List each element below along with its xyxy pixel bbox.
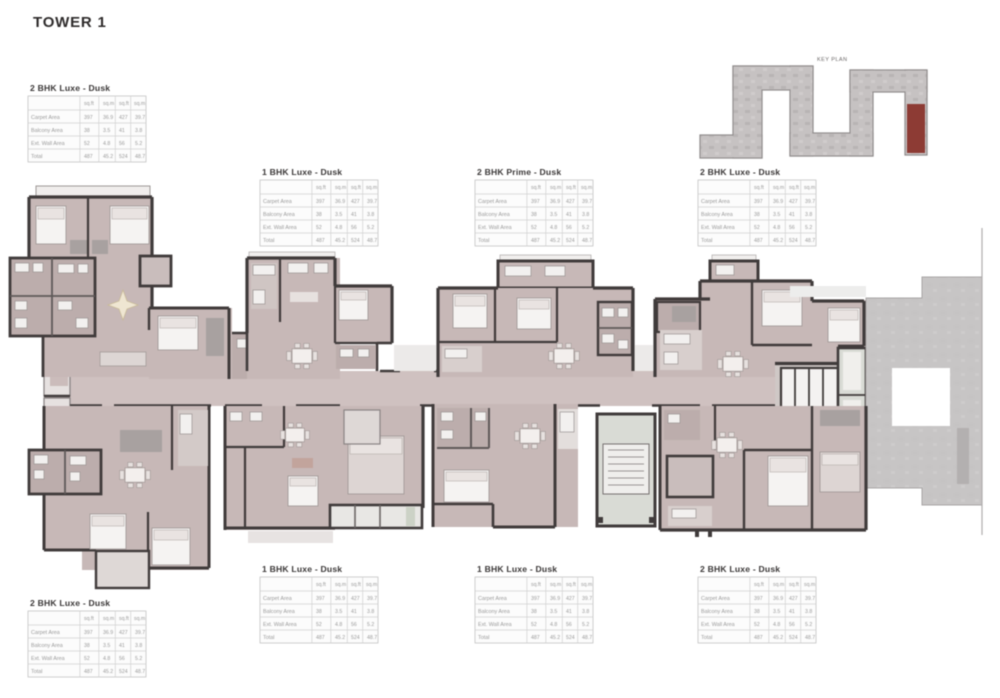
svg-text:41: 41 bbox=[119, 643, 125, 649]
svg-text:Carpet Area: Carpet Area bbox=[31, 630, 60, 636]
svg-text:427: 427 bbox=[119, 115, 128, 121]
svg-text:sq.m: sq.m bbox=[103, 101, 114, 107]
svg-text:38: 38 bbox=[531, 212, 537, 218]
svg-text:sq.m: sq.m bbox=[581, 185, 592, 191]
svg-text:Balcony Area: Balcony Area bbox=[701, 212, 733, 218]
svg-text:48.7: 48.7 bbox=[805, 238, 815, 244]
svg-text:Total: Total bbox=[263, 635, 274, 641]
svg-text:5.2: 5.2 bbox=[805, 622, 812, 628]
svg-text:52: 52 bbox=[316, 622, 322, 628]
svg-text:397: 397 bbox=[531, 596, 540, 602]
svg-text:sq.m: sq.m bbox=[550, 582, 561, 588]
svg-text:45.2: 45.2 bbox=[335, 238, 345, 244]
svg-text:45.2: 45.2 bbox=[550, 238, 560, 244]
svg-text:5.2: 5.2 bbox=[135, 656, 142, 662]
svg-text:Balcony Area: Balcony Area bbox=[478, 609, 510, 615]
svg-text:3.8: 3.8 bbox=[135, 643, 142, 649]
svg-text:2 BHK Luxe - Dusk: 2 BHK Luxe - Dusk bbox=[30, 83, 110, 93]
svg-text:48.7: 48.7 bbox=[135, 154, 145, 160]
svg-text:56: 56 bbox=[351, 225, 357, 231]
svg-text:Carpet Area: Carpet Area bbox=[263, 199, 292, 205]
svg-text:sq.ft: sq.ft bbox=[566, 582, 576, 588]
svg-text:sq.m: sq.m bbox=[550, 185, 561, 191]
svg-text:sq.m: sq.m bbox=[804, 582, 815, 588]
svg-text:41: 41 bbox=[789, 609, 795, 615]
svg-text:48.7: 48.7 bbox=[135, 669, 145, 675]
svg-text:45.2: 45.2 bbox=[103, 669, 113, 675]
svg-text:487: 487 bbox=[316, 635, 325, 641]
svg-text:36.9: 36.9 bbox=[103, 630, 113, 636]
svg-text:TOWER 1: TOWER 1 bbox=[33, 14, 107, 31]
svg-text:2 BHK Prime - Dusk: 2 BHK Prime - Dusk bbox=[477, 167, 561, 177]
svg-text:427: 427 bbox=[566, 596, 575, 602]
svg-text:5.2: 5.2 bbox=[135, 141, 142, 147]
svg-text:Ext. Wall Area: Ext. Wall Area bbox=[701, 225, 735, 231]
svg-text:Balcony Area: Balcony Area bbox=[263, 212, 295, 218]
svg-text:sq.ft: sq.ft bbox=[119, 101, 129, 107]
svg-text:Balcony Area: Balcony Area bbox=[31, 128, 63, 134]
svg-text:487: 487 bbox=[754, 635, 763, 641]
svg-text:4.8: 4.8 bbox=[335, 225, 342, 231]
svg-text:397: 397 bbox=[531, 199, 540, 205]
svg-text:2 BHK Luxe - Dusk: 2 BHK Luxe - Dusk bbox=[30, 598, 110, 608]
svg-text:524: 524 bbox=[566, 635, 575, 641]
svg-text:48.7: 48.7 bbox=[805, 635, 815, 641]
svg-text:38: 38 bbox=[316, 609, 322, 615]
svg-text:sq.ft: sq.ft bbox=[316, 185, 326, 191]
svg-text:3.5: 3.5 bbox=[550, 609, 557, 615]
svg-text:4.8: 4.8 bbox=[773, 622, 780, 628]
svg-text:524: 524 bbox=[351, 238, 360, 244]
svg-text:56: 56 bbox=[351, 622, 357, 628]
svg-text:48.7: 48.7 bbox=[582, 238, 592, 244]
svg-text:427: 427 bbox=[566, 199, 575, 205]
svg-text:487: 487 bbox=[84, 669, 93, 675]
svg-text:427: 427 bbox=[789, 596, 798, 602]
svg-text:38: 38 bbox=[84, 643, 90, 649]
svg-text:397: 397 bbox=[84, 630, 93, 636]
svg-text:41: 41 bbox=[351, 609, 357, 615]
svg-text:56: 56 bbox=[566, 225, 572, 231]
svg-text:Balcony Area: Balcony Area bbox=[478, 212, 510, 218]
svg-text:Ext. Wall Area: Ext. Wall Area bbox=[263, 622, 297, 628]
svg-text:Ext. Wall Area: Ext. Wall Area bbox=[31, 141, 65, 147]
svg-text:sq.ft: sq.ft bbox=[316, 582, 326, 588]
svg-text:427: 427 bbox=[351, 596, 360, 602]
svg-text:3.5: 3.5 bbox=[103, 128, 110, 134]
svg-text:45.2: 45.2 bbox=[550, 635, 560, 641]
svg-text:3.5: 3.5 bbox=[773, 609, 780, 615]
svg-text:36.9: 36.9 bbox=[773, 199, 783, 205]
svg-text:52: 52 bbox=[531, 622, 537, 628]
svg-text:524: 524 bbox=[789, 238, 798, 244]
svg-text:524: 524 bbox=[566, 238, 575, 244]
svg-text:39.7: 39.7 bbox=[135, 630, 145, 636]
svg-text:524: 524 bbox=[119, 154, 128, 160]
svg-text:3.5: 3.5 bbox=[335, 212, 342, 218]
svg-text:41: 41 bbox=[566, 609, 572, 615]
svg-text:39.7: 39.7 bbox=[135, 115, 145, 121]
svg-text:sq.ft: sq.ft bbox=[754, 582, 764, 588]
svg-text:2 BHK Luxe - Dusk: 2 BHK Luxe - Dusk bbox=[700, 564, 780, 574]
svg-text:52: 52 bbox=[531, 225, 537, 231]
svg-text:45.2: 45.2 bbox=[773, 238, 783, 244]
svg-text:487: 487 bbox=[531, 635, 540, 641]
svg-text:sq.ft: sq.ft bbox=[531, 582, 541, 588]
svg-text:524: 524 bbox=[119, 669, 128, 675]
svg-text:36.9: 36.9 bbox=[103, 115, 113, 121]
svg-text:1 BHK Luxe - Dusk: 1 BHK Luxe - Dusk bbox=[477, 564, 557, 574]
svg-text:Balcony Area: Balcony Area bbox=[31, 643, 63, 649]
svg-text:sq.m: sq.m bbox=[366, 582, 377, 588]
svg-text:sq.m: sq.m bbox=[804, 185, 815, 191]
svg-text:sq.ft: sq.ft bbox=[754, 185, 764, 191]
svg-text:3.8: 3.8 bbox=[582, 609, 589, 615]
svg-text:sq.m: sq.m bbox=[134, 101, 145, 107]
svg-text:39.7: 39.7 bbox=[367, 596, 377, 602]
svg-text:5.2: 5.2 bbox=[582, 225, 589, 231]
svg-text:Total: Total bbox=[701, 635, 712, 641]
svg-text:sq.ft: sq.ft bbox=[566, 185, 576, 191]
svg-text:38: 38 bbox=[84, 128, 90, 134]
svg-text:427: 427 bbox=[789, 199, 798, 205]
svg-text:38: 38 bbox=[316, 212, 322, 218]
svg-text:41: 41 bbox=[789, 212, 795, 218]
svg-text:Ext. Wall Area: Ext. Wall Area bbox=[478, 225, 512, 231]
svg-text:52: 52 bbox=[754, 225, 760, 231]
svg-text:Total: Total bbox=[701, 238, 712, 244]
svg-text:sq.m: sq.m bbox=[103, 616, 114, 622]
svg-text:56: 56 bbox=[119, 141, 125, 147]
svg-text:Carpet Area: Carpet Area bbox=[701, 199, 730, 205]
svg-text:5.2: 5.2 bbox=[367, 225, 374, 231]
svg-text:sq.ft: sq.ft bbox=[531, 185, 541, 191]
svg-text:3.5: 3.5 bbox=[773, 212, 780, 218]
svg-text:Ext. Wall Area: Ext. Wall Area bbox=[701, 622, 735, 628]
svg-text:sq.m: sq.m bbox=[773, 185, 784, 191]
svg-text:397: 397 bbox=[316, 199, 325, 205]
svg-text:3.8: 3.8 bbox=[367, 212, 374, 218]
svg-text:5.2: 5.2 bbox=[367, 622, 374, 628]
svg-text:427: 427 bbox=[351, 199, 360, 205]
svg-text:39.7: 39.7 bbox=[367, 199, 377, 205]
svg-text:56: 56 bbox=[789, 622, 795, 628]
svg-text:524: 524 bbox=[351, 635, 360, 641]
svg-text:Ext. Wall Area: Ext. Wall Area bbox=[478, 622, 512, 628]
svg-text:sq.ft: sq.ft bbox=[351, 185, 361, 191]
svg-text:Carpet Area: Carpet Area bbox=[31, 115, 60, 121]
svg-text:39.7: 39.7 bbox=[805, 199, 815, 205]
svg-text:Carpet Area: Carpet Area bbox=[701, 596, 730, 602]
svg-text:397: 397 bbox=[316, 596, 325, 602]
svg-text:sq.ft: sq.ft bbox=[84, 616, 94, 622]
svg-text:Carpet Area: Carpet Area bbox=[263, 596, 292, 602]
svg-text:52: 52 bbox=[84, 141, 90, 147]
svg-text:45.2: 45.2 bbox=[103, 154, 113, 160]
svg-text:KEY PLAN: KEY PLAN bbox=[817, 57, 847, 63]
svg-text:427: 427 bbox=[119, 630, 128, 636]
svg-text:Ext. Wall Area: Ext. Wall Area bbox=[263, 225, 297, 231]
svg-text:3.8: 3.8 bbox=[805, 609, 812, 615]
svg-text:36.9: 36.9 bbox=[550, 596, 560, 602]
svg-text:48.7: 48.7 bbox=[367, 635, 377, 641]
svg-text:5.2: 5.2 bbox=[805, 225, 812, 231]
svg-text:36.9: 36.9 bbox=[335, 596, 345, 602]
svg-text:sq.m: sq.m bbox=[134, 616, 145, 622]
svg-text:36.9: 36.9 bbox=[773, 596, 783, 602]
svg-text:sq.ft: sq.ft bbox=[789, 185, 799, 191]
svg-text:Ext. Wall Area: Ext. Wall Area bbox=[31, 656, 65, 662]
svg-text:41: 41 bbox=[351, 212, 357, 218]
svg-text:Balcony Area: Balcony Area bbox=[701, 609, 733, 615]
svg-text:39.7: 39.7 bbox=[582, 596, 592, 602]
svg-text:3.5: 3.5 bbox=[103, 643, 110, 649]
svg-text:39.7: 39.7 bbox=[805, 596, 815, 602]
svg-text:45.2: 45.2 bbox=[773, 635, 783, 641]
svg-text:4.8: 4.8 bbox=[335, 622, 342, 628]
svg-text:397: 397 bbox=[754, 596, 763, 602]
svg-text:4.8: 4.8 bbox=[773, 225, 780, 231]
svg-text:3.8: 3.8 bbox=[805, 212, 812, 218]
svg-text:sq.ft: sq.ft bbox=[351, 582, 361, 588]
svg-text:sq.m: sq.m bbox=[773, 582, 784, 588]
svg-text:38: 38 bbox=[531, 609, 537, 615]
svg-text:397: 397 bbox=[754, 199, 763, 205]
svg-text:39.7: 39.7 bbox=[582, 199, 592, 205]
svg-text:524: 524 bbox=[789, 635, 798, 641]
svg-text:56: 56 bbox=[566, 622, 572, 628]
svg-text:487: 487 bbox=[754, 238, 763, 244]
svg-text:36.9: 36.9 bbox=[335, 199, 345, 205]
svg-text:4.8: 4.8 bbox=[103, 141, 110, 147]
svg-text:41: 41 bbox=[119, 128, 125, 134]
svg-text:52: 52 bbox=[316, 225, 322, 231]
svg-text:38: 38 bbox=[754, 609, 760, 615]
svg-text:Total: Total bbox=[478, 635, 489, 641]
svg-text:4.8: 4.8 bbox=[103, 656, 110, 662]
svg-text:4.8: 4.8 bbox=[550, 225, 557, 231]
svg-text:487: 487 bbox=[84, 154, 93, 160]
svg-text:sq.ft: sq.ft bbox=[789, 582, 799, 588]
svg-text:Total: Total bbox=[478, 238, 489, 244]
svg-text:5.2: 5.2 bbox=[582, 622, 589, 628]
svg-text:45.2: 45.2 bbox=[335, 635, 345, 641]
svg-text:sq.m: sq.m bbox=[366, 185, 377, 191]
svg-text:sq.ft: sq.ft bbox=[84, 101, 94, 107]
svg-text:487: 487 bbox=[316, 238, 325, 244]
svg-text:Total: Total bbox=[263, 238, 274, 244]
svg-text:4.8: 4.8 bbox=[550, 622, 557, 628]
svg-text:48.7: 48.7 bbox=[367, 238, 377, 244]
svg-text:Carpet Area: Carpet Area bbox=[478, 596, 507, 602]
svg-text:sq.m: sq.m bbox=[335, 582, 346, 588]
svg-text:56: 56 bbox=[789, 225, 795, 231]
svg-text:3.8: 3.8 bbox=[135, 128, 142, 134]
svg-text:Total: Total bbox=[31, 669, 42, 675]
svg-text:48.7: 48.7 bbox=[582, 635, 592, 641]
svg-text:487: 487 bbox=[531, 238, 540, 244]
svg-text:3.8: 3.8 bbox=[367, 609, 374, 615]
svg-text:56: 56 bbox=[119, 656, 125, 662]
svg-text:sq.ft: sq.ft bbox=[119, 616, 129, 622]
svg-text:3.8: 3.8 bbox=[582, 212, 589, 218]
svg-text:1 BHK Luxe - Dusk: 1 BHK Luxe - Dusk bbox=[262, 167, 342, 177]
svg-text:41: 41 bbox=[566, 212, 572, 218]
svg-text:52: 52 bbox=[84, 656, 90, 662]
svg-text:Carpet Area: Carpet Area bbox=[478, 199, 507, 205]
svg-text:3.5: 3.5 bbox=[550, 212, 557, 218]
svg-text:36.9: 36.9 bbox=[550, 199, 560, 205]
svg-text:Total: Total bbox=[31, 154, 42, 160]
svg-text:38: 38 bbox=[754, 212, 760, 218]
svg-text:3.5: 3.5 bbox=[335, 609, 342, 615]
svg-text:397: 397 bbox=[84, 115, 93, 121]
svg-text:1 BHK Luxe - Dusk: 1 BHK Luxe - Dusk bbox=[262, 564, 342, 574]
svg-text:sq.m: sq.m bbox=[581, 582, 592, 588]
svg-text:Balcony Area: Balcony Area bbox=[263, 609, 295, 615]
svg-text:52: 52 bbox=[754, 622, 760, 628]
svg-text:2 BHK Luxe - Dusk: 2 BHK Luxe - Dusk bbox=[700, 167, 780, 177]
svg-text:sq.m: sq.m bbox=[335, 185, 346, 191]
